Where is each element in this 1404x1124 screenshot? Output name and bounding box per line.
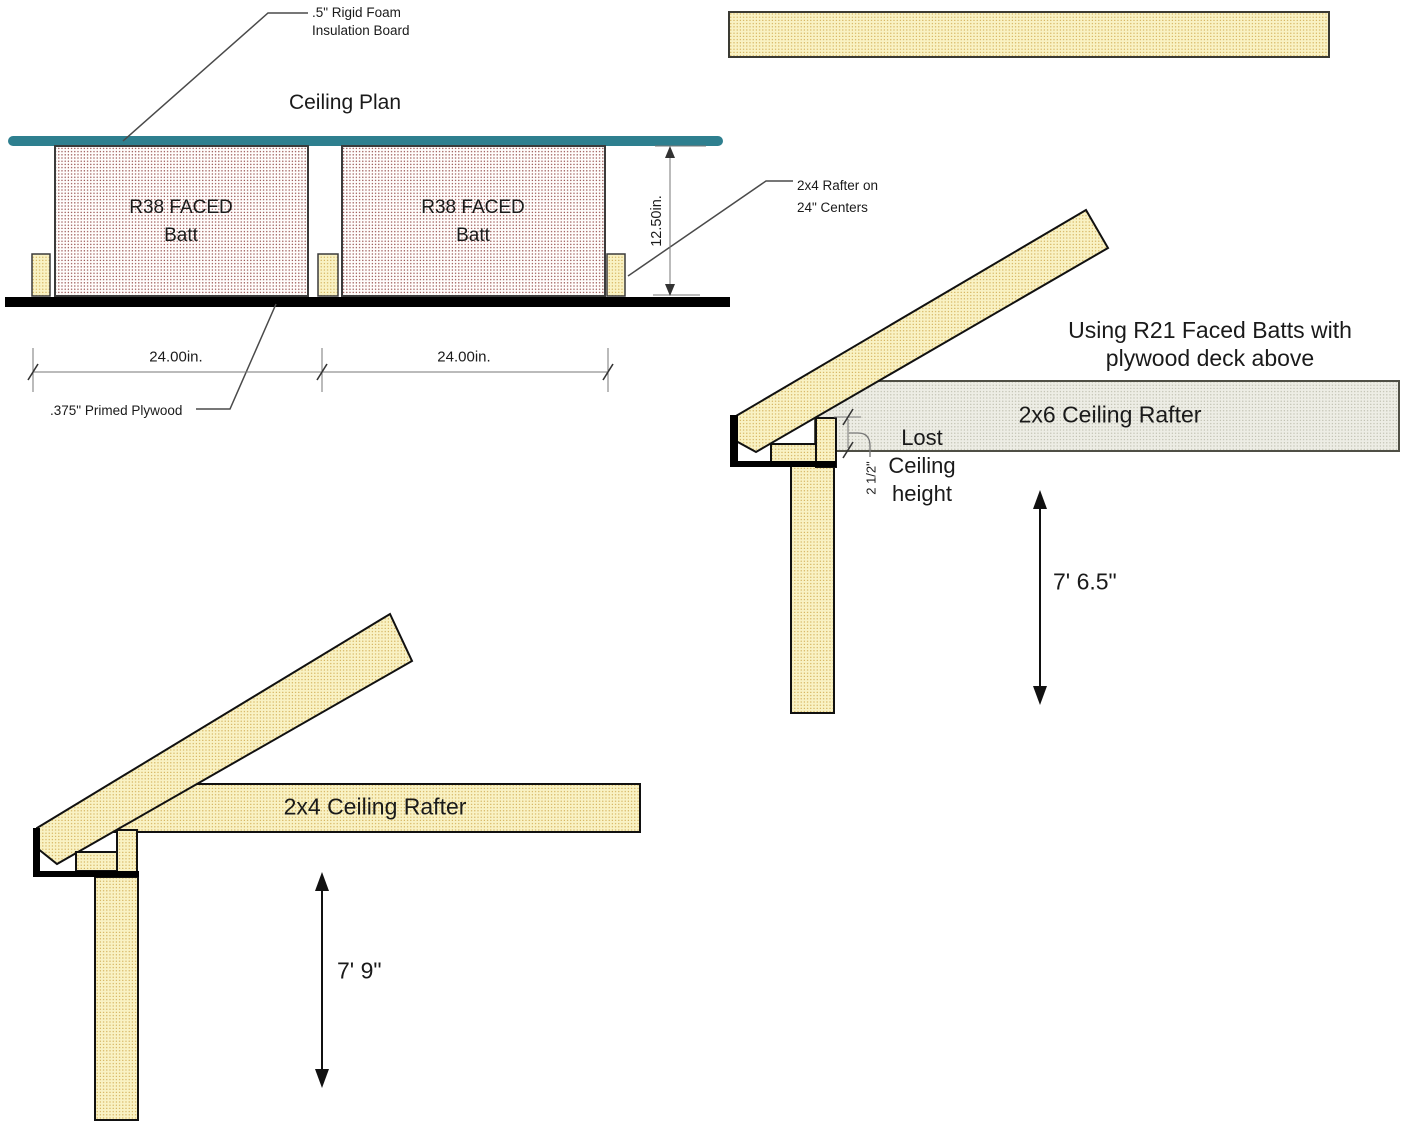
lost-ceiling-height-label: Lost Ceiling height (888, 424, 955, 508)
dim-depth: 12.50in. (649, 195, 665, 247)
foam-leader-line (123, 13, 308, 141)
rafter-centers-label: 2x4 Rafter on 24" Centers (797, 175, 878, 219)
height-dim-right: 7' 6.5" (1053, 569, 1117, 596)
plywood-leader-line (196, 304, 276, 409)
lost-label-line2: Ceiling (888, 452, 955, 480)
construction-diagram: .5" Rigid Foam Insulation Board Ceiling … (0, 0, 1404, 1124)
batt-right-label-line2: Batt (421, 222, 524, 250)
batt-left-label-line1: R38 FACED (129, 194, 232, 222)
dim-width-left: 24.00in. (149, 349, 202, 366)
gap-dim-label: 2 1/2" (864, 461, 879, 495)
diagram-graphics (0, 0, 1404, 1124)
primed-plywood (5, 297, 730, 307)
batt-left-label-line2: Batt (129, 222, 232, 250)
rigid-foam-board (8, 136, 723, 146)
rafter-block-middle (318, 254, 338, 296)
vertical-blocking-left-detail (117, 830, 137, 872)
rafter-centers-label-line1: 2x4 Rafter on (797, 175, 878, 197)
rafter-2x6-label: 2x6 Ceiling Rafter (1019, 402, 1202, 429)
batt-right-label-line1: R38 FACED (421, 194, 524, 222)
rafter-centers-label-line2: 24" Centers (797, 197, 878, 219)
batt-right-label: R38 FACED Batt (421, 194, 524, 250)
lumber-strip (729, 12, 1329, 57)
detail-r21-heading-line1: Using R21 Faced Batts with (1068, 316, 1352, 344)
width-dimension-lines (33, 348, 608, 392)
top-plate-block-left-detail (76, 852, 118, 871)
lost-label-line1: Lost (888, 424, 955, 452)
height-arrow-left (315, 872, 329, 1088)
dim-width-right: 24.00in. (437, 349, 490, 366)
height-arrow-right (1033, 490, 1047, 705)
foam-insulation-label: .5" Rigid Foam Insulation Board (312, 4, 410, 40)
detail-r21-heading: Using R21 Faced Batts with plywood deck … (1068, 316, 1352, 372)
vertical-blocking-right-detail (816, 418, 836, 467)
lost-label-line3: height (888, 480, 955, 508)
wall-stud-left-detail (95, 877, 138, 1120)
height-dim-left: 7' 9" (337, 958, 382, 985)
top-plate-block-right-detail (771, 444, 817, 463)
wall-stud-right-detail (791, 465, 834, 713)
batt-left-label: R38 FACED Batt (129, 194, 232, 250)
foam-insulation-label-line2: Insulation Board (312, 22, 410, 40)
plywood-label: .375" Primed Plywood (50, 402, 182, 420)
detail-r21-heading-line2: plywood deck above (1068, 344, 1352, 372)
foam-insulation-label-line1: .5" Rigid Foam (312, 4, 410, 22)
rafter-block-right (607, 254, 625, 296)
page-title: Ceiling Plan (289, 91, 401, 115)
rafter-block-left (32, 254, 50, 296)
rafter-2x4-label: 2x4 Ceiling Rafter (284, 794, 467, 821)
